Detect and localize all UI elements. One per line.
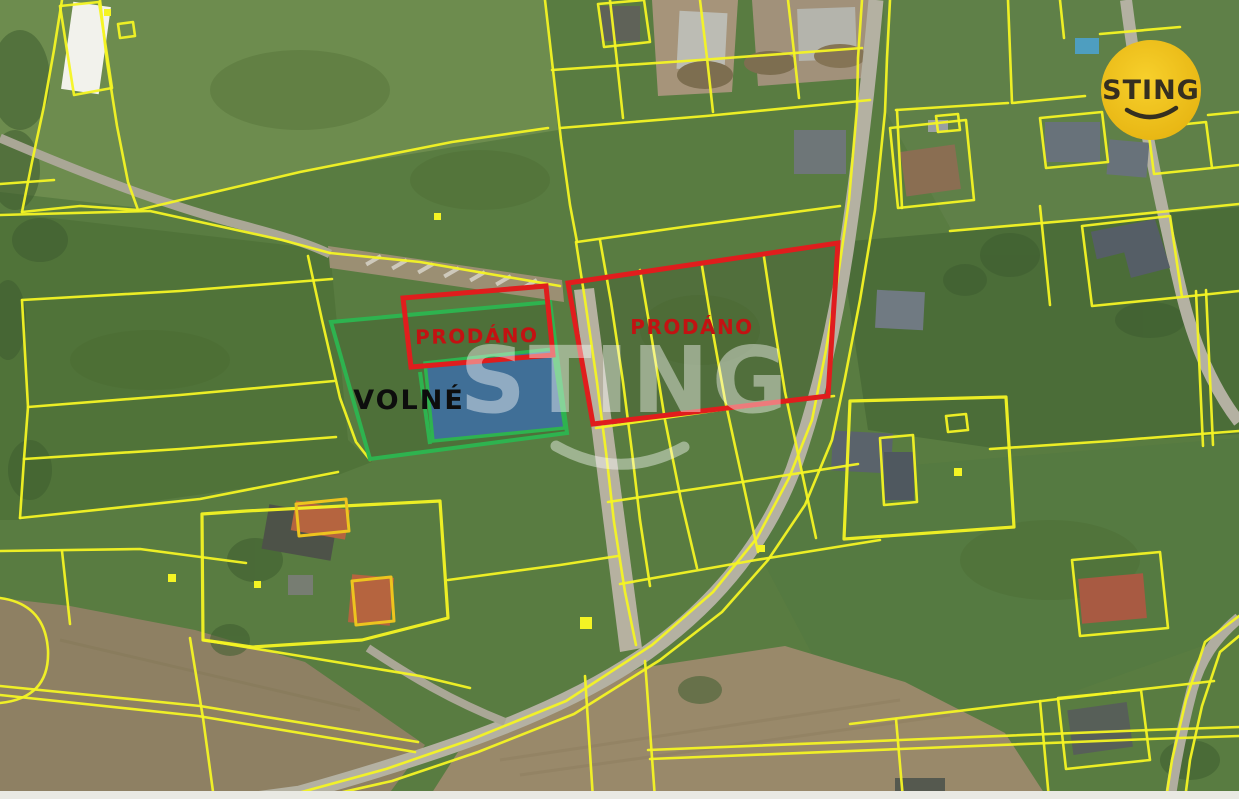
house-right-dark-2 (884, 452, 914, 500)
house-topright-2 (1107, 139, 1150, 177)
aerial-cadastral-map: PRODÁNO PRODÁNO VOLNÉ STING STING (0, 0, 1239, 799)
label-available: VOLNÉ (353, 384, 465, 416)
house-midright (875, 290, 925, 330)
house-topright-1 (1045, 122, 1100, 162)
house-br-dark (1067, 702, 1133, 755)
house-br-red (1078, 573, 1147, 623)
house-brown-top (900, 144, 961, 196)
house-top-center (600, 6, 640, 41)
sting-logo: STING (1101, 40, 1201, 140)
map-canvas: PRODÁNO PRODÁNO VOLNÉ STING STING (0, 0, 1239, 799)
house-gray-top (794, 130, 846, 174)
sting-logo-text: STING (1102, 75, 1200, 106)
sting-watermark-text: STING (460, 327, 791, 434)
pool-blue (1075, 38, 1099, 54)
map-bottom-strip (0, 791, 1239, 799)
shed-bl (288, 575, 313, 595)
